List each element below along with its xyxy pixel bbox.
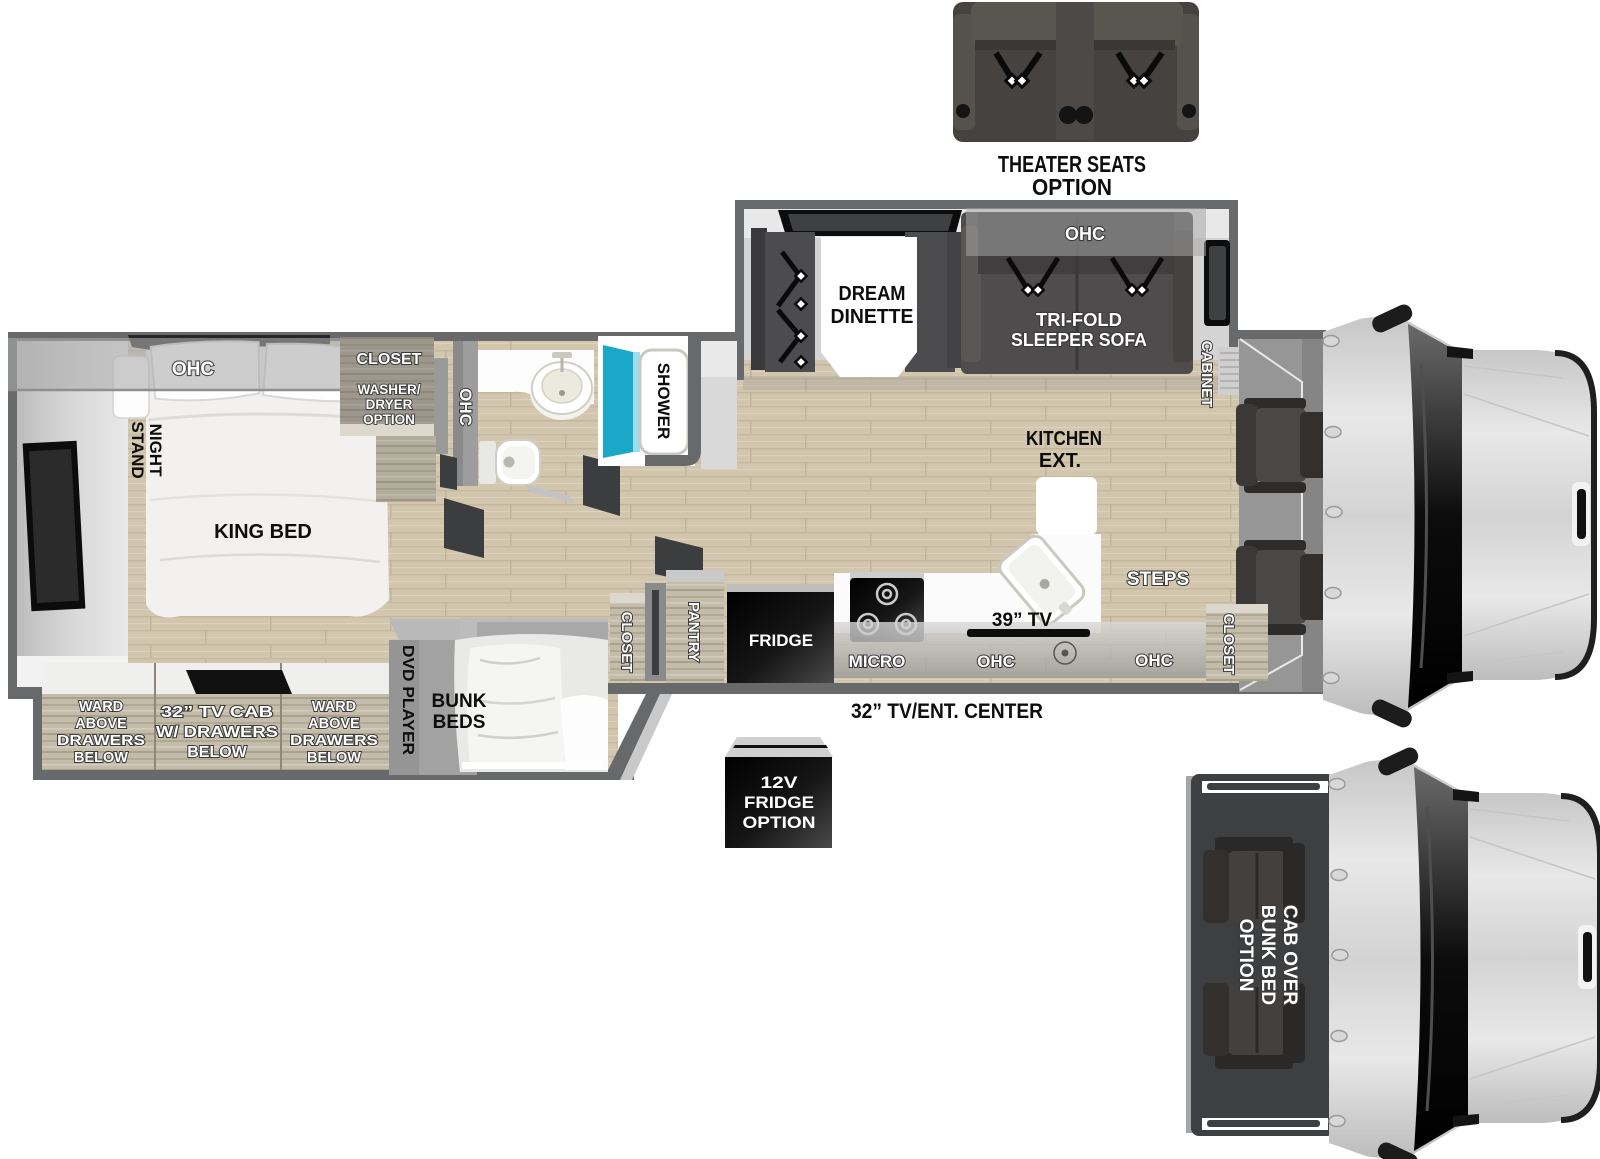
svg-text:OPTION: OPTION [363,412,415,427]
svg-text:OHC: OHC [977,652,1015,671]
svg-text:OHC: OHC [1135,651,1173,670]
svg-text:12V: 12V [761,773,799,792]
svg-text:BELOW: BELOW [187,744,247,761]
svg-text:BUNK: BUNK [432,691,487,712]
svg-text:KING BED: KING BED [214,521,312,543]
svg-text:WARD: WARD [79,699,123,715]
svg-text:EXT.: EXT. [1039,450,1081,472]
svg-text:OPTION: OPTION [743,813,816,832]
svg-text:KITCHEN: KITCHEN [1026,428,1102,450]
svg-text:DRYER: DRYER [366,397,413,412]
svg-text:TRI-FOLD: TRI-FOLD [1036,310,1122,330]
svg-text:OHC: OHC [456,388,475,426]
svg-text:SLEEPER SOFA: SLEEPER SOFA [1011,330,1147,350]
svg-text:32” TV CAB: 32” TV CAB [161,704,273,721]
svg-text:CLOSET: CLOSET [618,612,635,673]
svg-text:DVD PLAYER: DVD PLAYER [399,645,416,755]
svg-text:CAB OVER: CAB OVER [1279,905,1300,1006]
svg-text:FRIDGE: FRIDGE [744,793,814,812]
svg-text:DREAM: DREAM [839,283,906,305]
svg-text:STAND: STAND [128,421,147,478]
svg-text:OPTION: OPTION [1235,919,1256,992]
svg-text:DRAWERS: DRAWERS [290,733,378,749]
svg-text:WARD: WARD [312,699,356,715]
svg-text:OPTION: OPTION [1032,174,1112,200]
svg-text:OHC: OHC [172,359,215,380]
svg-text:NIGHT: NIGHT [146,424,165,478]
svg-text:STEPS: STEPS [1127,569,1189,590]
svg-text:ABOVE: ABOVE [75,716,127,732]
svg-text:W/ DRAWERS: W/ DRAWERS [156,724,278,741]
svg-text:PANTRY: PANTRY [685,602,702,662]
svg-text:MICRO: MICRO [849,652,906,671]
svg-text:DRAWERS: DRAWERS [57,733,145,749]
svg-text:39” TV: 39” TV [992,610,1053,631]
svg-text:32” TV/ENT. CENTER: 32” TV/ENT. CENTER [851,700,1043,723]
svg-text:ABOVE: ABOVE [308,716,360,732]
svg-text:FRIDGE: FRIDGE [749,631,813,650]
svg-text:OHC: OHC [1065,224,1105,244]
svg-text:BEDS: BEDS [433,712,486,733]
svg-text:DINETTE: DINETTE [831,306,914,328]
svg-text:BELOW: BELOW [74,750,128,766]
svg-text:CLOSET: CLOSET [1220,614,1237,675]
svg-text:CLOSET: CLOSET [357,351,422,368]
svg-text:WASHER/: WASHER/ [357,382,420,397]
svg-text:CABINET: CABINET [1198,341,1215,408]
svg-text:BELOW: BELOW [307,750,361,766]
svg-text:SHOWER: SHOWER [654,363,673,440]
svg-text:BUNK BED: BUNK BED [1257,905,1278,1005]
